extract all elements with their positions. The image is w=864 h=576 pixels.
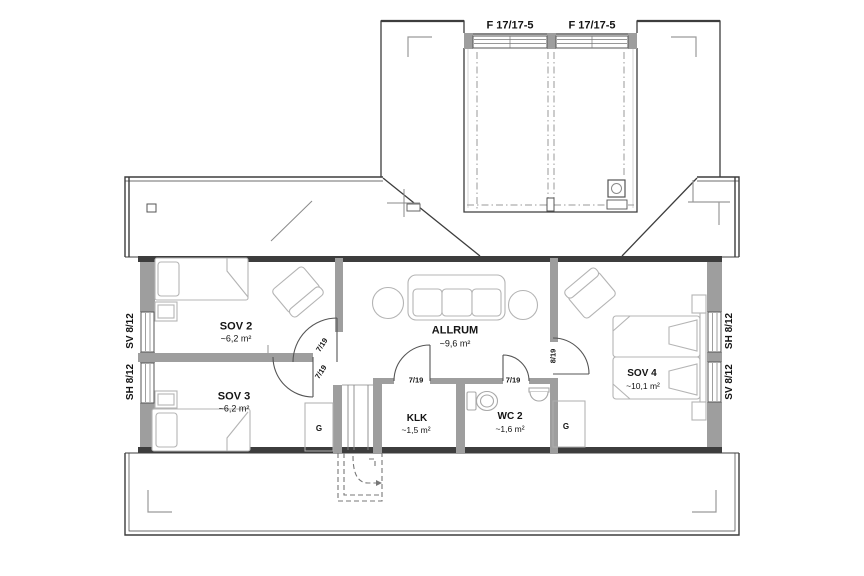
window-label-left-top: SV 8/12: [126, 313, 136, 349]
door-sov4: [553, 338, 589, 374]
door-label-klk: 7/19: [408, 376, 425, 384]
window-right-top: [708, 312, 721, 352]
nightstand-sov3: [155, 391, 177, 408]
window-left-top: [141, 312, 154, 352]
wc-fixtures: [467, 388, 549, 411]
room-area-sov2: ~6,2 m²: [221, 335, 252, 344]
door-sov3: [273, 357, 313, 397]
window-label-left-bottom: SH 8/12: [126, 364, 136, 400]
bed-sov2: [155, 258, 248, 300]
window-left-bottom: [141, 363, 154, 403]
room-area-sov3: ~6,2 m²: [219, 405, 250, 414]
vent-pipe-symbol: [608, 180, 625, 197]
chimney-symbol: [387, 189, 420, 217]
window-right-bottom: [708, 362, 721, 402]
toilet: [467, 392, 498, 411]
dormer-hatch: [607, 200, 627, 209]
roof-vent-square: [147, 204, 156, 212]
dormer-post: [547, 198, 554, 211]
room-name-sov4: SOV 4: [627, 369, 656, 379]
floor-plan-drawing: [0, 0, 864, 576]
dormer-window-label-right: F 17/17-5: [568, 21, 615, 32]
window-label-right-bottom: SV 8/12: [725, 364, 735, 400]
room-name-wc2: WC 2: [498, 412, 523, 422]
closet-label-sov3: G: [316, 425, 322, 433]
armchair-sov2: [271, 265, 325, 318]
floor-plan: F 17/17-5 F 17/17-5 SV 8/12 SH 8/12 SH 8…: [0, 0, 864, 576]
side-table-right: [509, 291, 538, 320]
room-name-sov3: SOV 3: [218, 392, 250, 403]
roof-misc-symbols: [147, 189, 420, 241]
room-name-allrum: ALLRUM: [432, 326, 478, 337]
room-name-sov2: SOV 2: [220, 322, 252, 333]
sink: [529, 388, 549, 401]
room-name-klk: KLK: [407, 414, 428, 424]
door-label-wc2: 7/19: [505, 376, 522, 384]
window-f1: [473, 36, 547, 48]
side-table-left: [373, 288, 404, 319]
stair-below-dashed: [338, 453, 382, 501]
door-label-sov4: 8/19: [549, 349, 557, 364]
room-area-klk: ~1,5 m²: [401, 426, 430, 435]
window-label-right-top: SH 8/12: [725, 313, 735, 349]
room-area-sov4: ~10,1 m²: [626, 382, 660, 391]
nightstand-sov2: [155, 302, 177, 321]
dormer-window-label-left: F 17/17-5: [486, 21, 533, 32]
closet-label-sov4: G: [563, 423, 569, 431]
closets: [305, 401, 585, 451]
armchair-sov4: [563, 266, 617, 319]
room-area-allrum: ~9,6 m²: [440, 340, 471, 349]
doors: [268, 318, 589, 397]
dormer-interior: [464, 48, 637, 212]
bed-sov3: [152, 409, 250, 451]
roof-valley-lines: [383, 178, 697, 256]
window-f2: [556, 36, 628, 48]
dormer-windows: [464, 33, 637, 49]
room-area-wc2: ~1,6 m²: [495, 425, 524, 434]
stair-direction-arrow: [376, 480, 382, 486]
sofa-allrum: [408, 275, 505, 320]
